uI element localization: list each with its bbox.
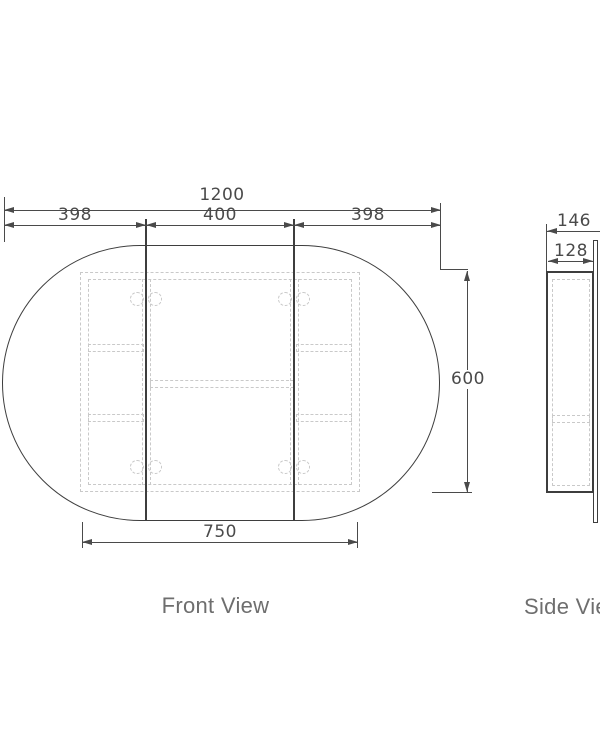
side-view-label: Side View (524, 594, 600, 620)
dim-text-right-section: 398 (336, 206, 400, 225)
side-view-group: 146 128 Side View (0, 0, 600, 750)
side-carcass-hidden-line (552, 279, 590, 486)
dim-text-overall-width: 1200 (190, 186, 254, 205)
dim-text-left-section: 398 (43, 206, 107, 225)
dim-text-carcass-width: 750 (188, 523, 252, 542)
dim-text-overall-depth: 146 (542, 212, 600, 231)
side-shelf-hidden-line (552, 415, 590, 423)
technical-drawing-canvas: 1200 398 400 398 600 750 Front View (0, 0, 600, 750)
dim-text-height: 600 (446, 370, 490, 389)
side-mirror-panel (593, 240, 598, 523)
dim-text-middle-section: 400 (188, 206, 252, 225)
dim-text-carcass-depth: 128 (539, 242, 600, 261)
